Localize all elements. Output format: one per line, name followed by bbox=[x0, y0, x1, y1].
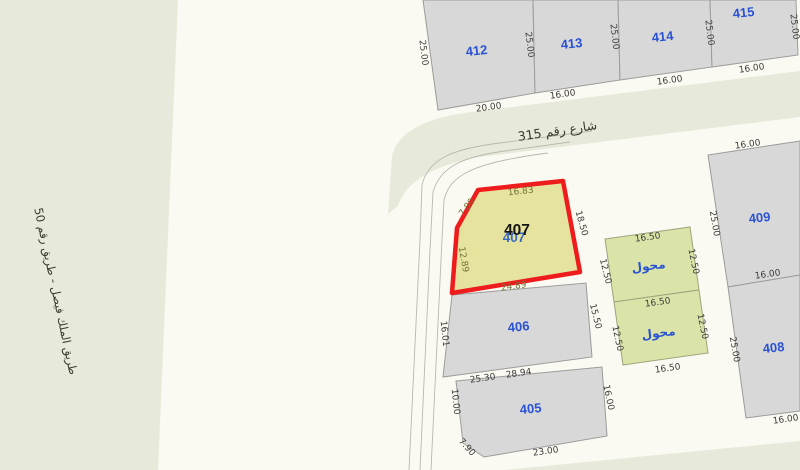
parcel-406-number: 406 bbox=[507, 318, 530, 335]
parcel-413-number: 413 bbox=[560, 35, 583, 52]
parcel-412-number: 412 bbox=[465, 42, 488, 59]
road-king-faisal[interactable] bbox=[0, 0, 178, 470]
map-canvas[interactable]: طريق الملك فيصل - طريق رقم 50 شارع رقم 3… bbox=[0, 0, 800, 470]
parcel-408-number: 408 bbox=[762, 339, 785, 356]
parcel-407-number-overlay: 407 bbox=[504, 222, 530, 239]
parcel-414-number: 414 bbox=[651, 28, 675, 45]
parcel-405-number: 405 bbox=[519, 400, 542, 417]
parcel-409-number: 409 bbox=[748, 209, 771, 226]
parcel-415-number: 415 bbox=[732, 4, 755, 21]
cadastral-map-view: طريق الملك فيصل - طريق رقم 50 شارع رقم 3… bbox=[0, 0, 800, 470]
